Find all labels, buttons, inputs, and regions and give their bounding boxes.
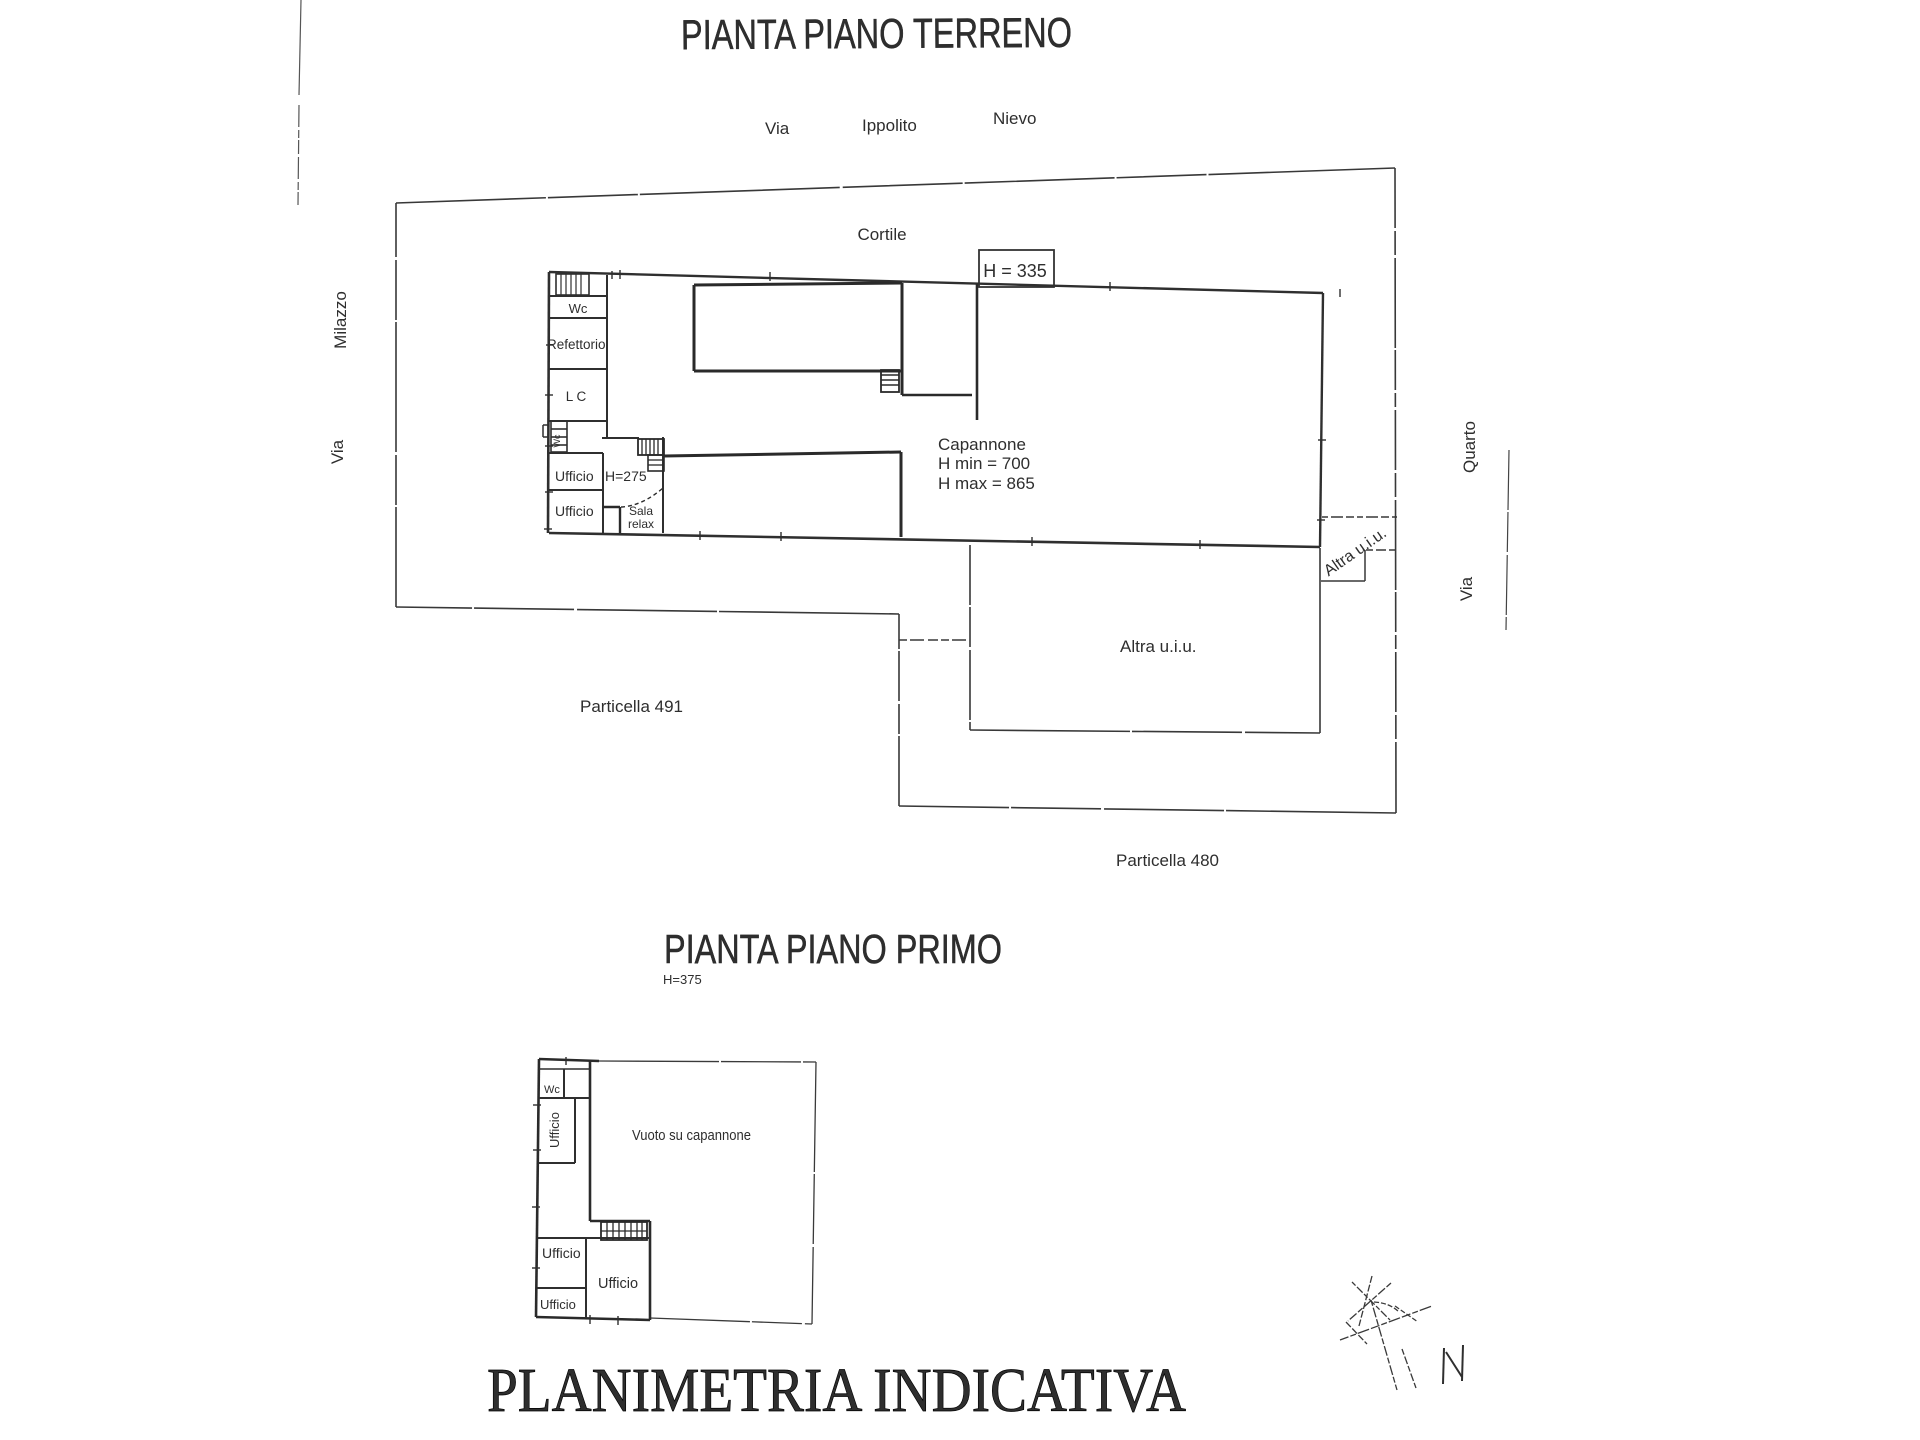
svg-text:Particella 480: Particella 480 — [1116, 851, 1219, 870]
svg-text:Sala: Sala — [629, 504, 653, 518]
svg-text:H min = 700: H min = 700 — [938, 454, 1030, 473]
svg-text:Refettorio: Refettorio — [547, 337, 606, 352]
svg-text:Quarto: Quarto — [1460, 421, 1479, 473]
svg-text:L C: L C — [566, 389, 587, 404]
svg-text:Altra u.i.u.: Altra u.i.u. — [1321, 525, 1390, 580]
svg-text:PIANTA PIANO PRIMO: PIANTA PIANO PRIMO — [664, 926, 1002, 972]
svg-text:H=275: H=275 — [605, 468, 647, 484]
svg-text:H max = 865: H max = 865 — [938, 474, 1035, 493]
svg-text:Altra u.i.u.: Altra u.i.u. — [1120, 637, 1197, 656]
svg-text:Wc: Wc — [569, 301, 588, 316]
svg-text:Milazzo: Milazzo — [331, 291, 350, 349]
svg-text:Via: Via — [765, 119, 790, 138]
svg-text:Via: Via — [1457, 576, 1476, 601]
svg-text:Wc: Wc — [544, 1084, 560, 1096]
svg-text:Nievo: Nievo — [993, 109, 1036, 128]
svg-text:Ufficio: Ufficio — [542, 1245, 581, 1261]
svg-text:Particella 491: Particella 491 — [580, 697, 683, 716]
svg-text:Ufficio: Ufficio — [598, 1276, 638, 1292]
svg-text:Capannone: Capannone — [938, 435, 1026, 454]
svg-text:Ippolito: Ippolito — [862, 116, 917, 135]
svg-text:relax: relax — [628, 517, 654, 531]
svg-text:H=375: H=375 — [663, 972, 702, 987]
svg-text:Ufficio: Ufficio — [555, 503, 594, 519]
svg-text:Ufficio: Ufficio — [555, 468, 594, 484]
svg-text:Ufficio: Ufficio — [547, 1112, 562, 1148]
svg-text:PIANTA PIANO TERRENO: PIANTA PIANO TERRENO — [681, 9, 1072, 58]
svg-text:H = 335: H = 335 — [983, 261, 1047, 281]
svg-text:Cortile: Cortile — [857, 225, 906, 244]
svg-text:Via: Via — [328, 439, 347, 464]
svg-text:Wc: Wc — [552, 434, 562, 447]
svg-text:Vuoto su capannone: Vuoto su capannone — [632, 1127, 751, 1144]
svg-text:Ufficio: Ufficio — [540, 1297, 576, 1312]
svg-text:PLANIMETRIA INDICATIVA: PLANIMETRIA INDICATIVA — [487, 1357, 1186, 1425]
